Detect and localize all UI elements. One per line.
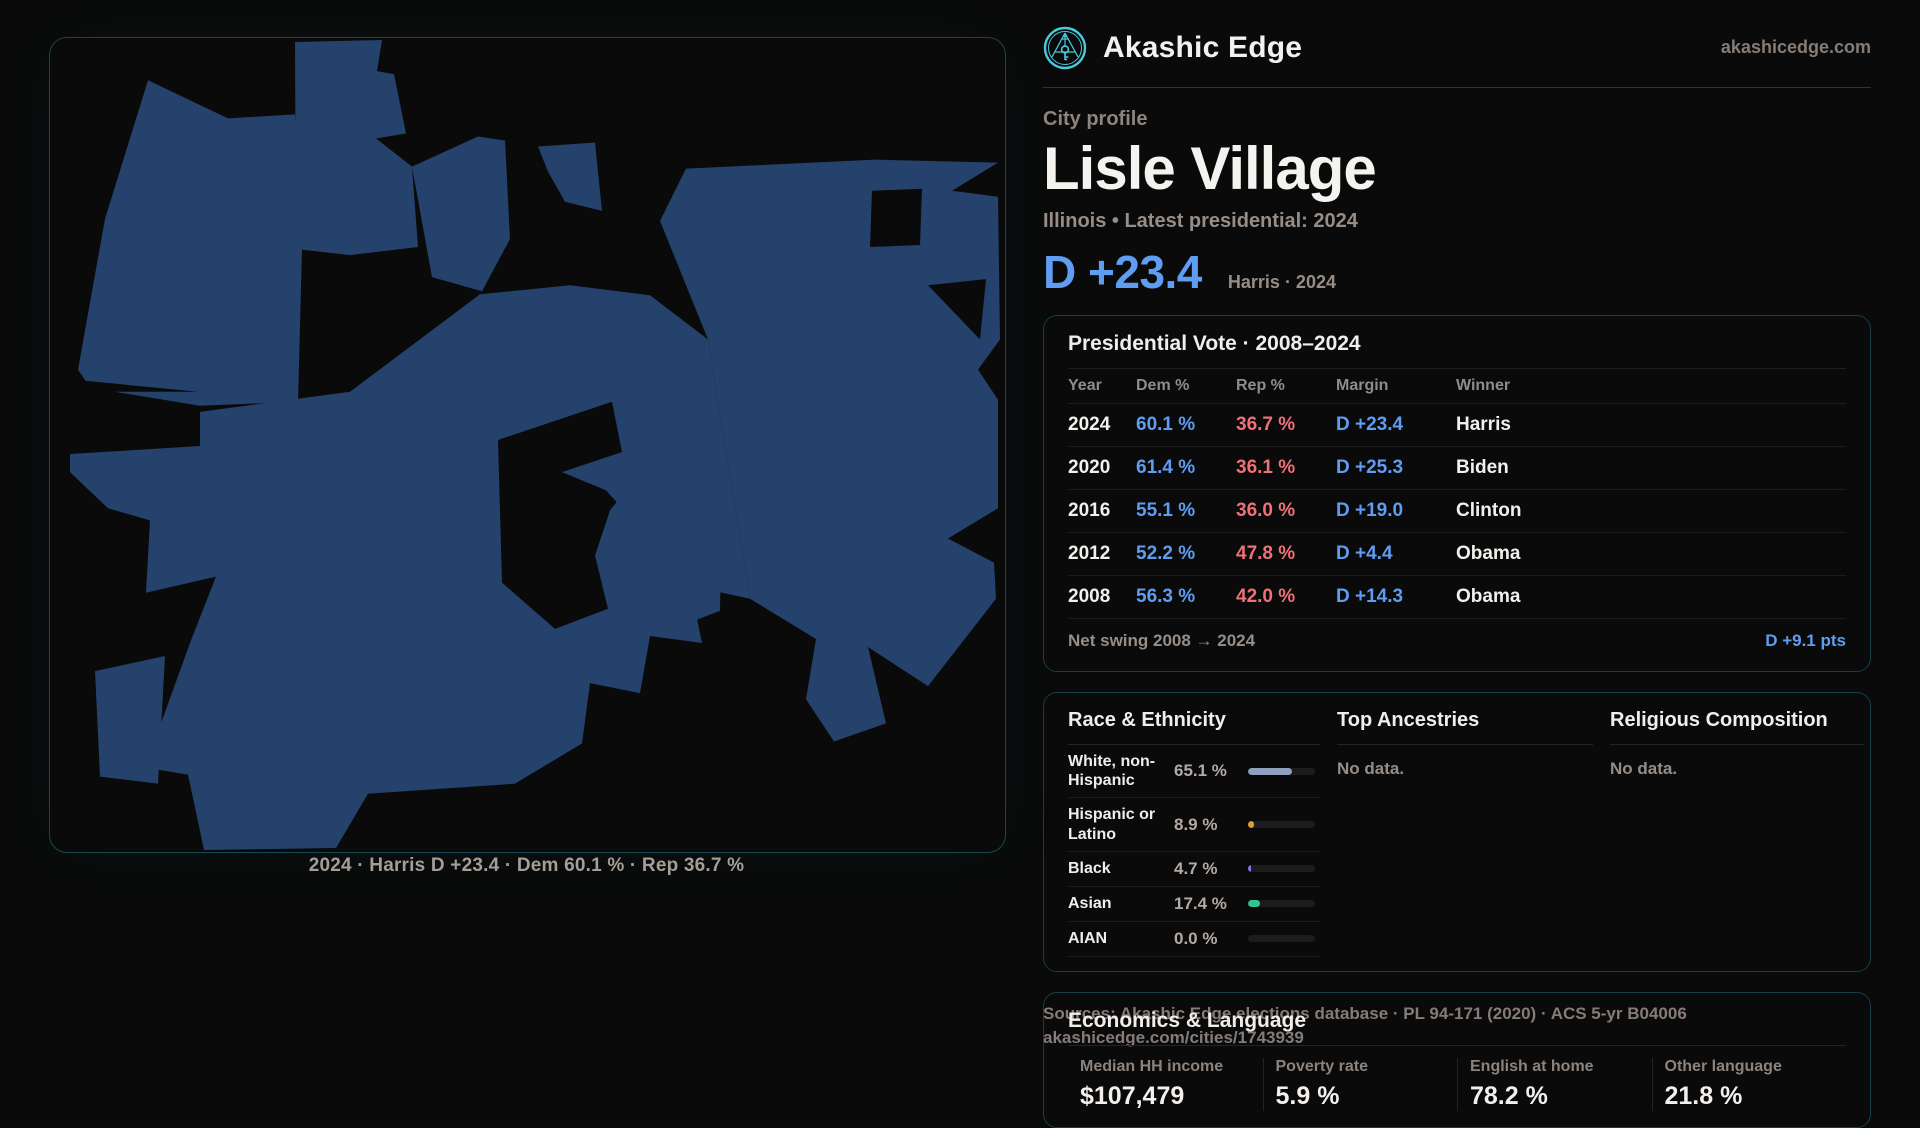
- demographics-card: Race & Ethnicity White, non-Hispanic 65.…: [1043, 692, 1871, 972]
- cell-dem: 55.1 %: [1136, 500, 1236, 522]
- city-boundary-map: [49, 37, 1006, 853]
- stat-value: $107,479: [1080, 1082, 1263, 1111]
- presidential-vote-card: Presidential Vote · 2008–2024 Year Dem %…: [1043, 315, 1871, 672]
- race-value: 17.4 %: [1174, 894, 1248, 914]
- list-item: Hispanic or Latino 8.9 %: [1068, 798, 1320, 851]
- cell-dem: 56.3 %: [1136, 586, 1236, 608]
- cell-winner: Biden: [1456, 457, 1846, 479]
- hero-margin-caption: Harris · 2024: [1228, 272, 1336, 293]
- economics-card: Economics & Language Median HH income $1…: [1043, 992, 1871, 1128]
- list-item: Asian 17.4 %: [1068, 887, 1320, 922]
- cell-rep: 47.8 %: [1236, 543, 1336, 565]
- top-ancestries-title: Top Ancestries: [1337, 709, 1593, 745]
- stat-label: English at home: [1470, 1058, 1652, 1076]
- cell-winner: Clinton: [1456, 500, 1846, 522]
- stat-label: Other language: [1665, 1058, 1847, 1076]
- stat-other-language: Other language 21.8 %: [1652, 1058, 1847, 1111]
- list-item: AIAN 0.0 %: [1068, 922, 1320, 957]
- col-margin: Margin: [1336, 377, 1456, 395]
- map-polygon-svg: [50, 38, 1005, 852]
- race-bar: [1248, 935, 1315, 942]
- col-winner: Winner: [1456, 377, 1846, 395]
- race-value: 4.7 %: [1174, 859, 1248, 879]
- stat-median-income: Median HH income $107,479: [1068, 1058, 1263, 1111]
- stat-poverty-rate: Poverty rate 5.9 %: [1263, 1058, 1458, 1111]
- list-item: White, non-Hispanic 65.1 %: [1068, 745, 1320, 798]
- page-title: Lisle Village: [1043, 137, 1871, 200]
- table-row: 2012 52.2 % 47.8 % D +4.4 Obama: [1068, 533, 1846, 576]
- race-value: 65.1 %: [1174, 761, 1248, 781]
- religious-composition-column: Religious Composition No data.: [1610, 709, 1864, 957]
- cell-winner: Obama: [1456, 586, 1846, 608]
- race-ethnicity-column: Race & Ethnicity White, non-Hispanic 65.…: [1068, 709, 1320, 957]
- cell-year: 2008: [1068, 586, 1136, 608]
- brand-name: Akashic Edge: [1103, 31, 1302, 65]
- race-label: Asian: [1068, 894, 1174, 913]
- cell-margin: D +19.0: [1336, 500, 1456, 522]
- stat-label: Median HH income: [1080, 1058, 1263, 1076]
- akashic-edge-logo-icon: [1043, 26, 1087, 70]
- cell-rep: 36.0 %: [1236, 500, 1336, 522]
- cell-rep: 42.0 %: [1236, 586, 1336, 608]
- race-bar: [1248, 821, 1315, 828]
- col-rep: Rep %: [1236, 377, 1336, 395]
- cell-year: 2024: [1068, 414, 1136, 436]
- cell-winner: Harris: [1456, 414, 1846, 436]
- list-item: Black 4.7 %: [1068, 852, 1320, 887]
- profile-panel: Akashic Edge akashicedge.com City profil…: [1043, 0, 1871, 1128]
- cell-margin: D +25.3: [1336, 457, 1456, 479]
- cell-year: 2020: [1068, 457, 1136, 479]
- col-dem: Dem %: [1136, 377, 1236, 395]
- cell-winner: Obama: [1456, 543, 1846, 565]
- hero-margin-value: D +23.4: [1043, 245, 1202, 299]
- vote-table-header: Year Dem % Rep % Margin Winner: [1068, 369, 1846, 404]
- race-label: AIAN: [1068, 929, 1174, 948]
- religious-composition-title: Religious Composition: [1610, 709, 1864, 745]
- page-subtitle: Illinois • Latest presidential: 2024: [1043, 210, 1871, 233]
- cell-margin: D +14.3: [1336, 586, 1456, 608]
- ancestries-empty-state: No data.: [1337, 759, 1593, 779]
- presidential-vote-title: Presidential Vote · 2008–2024: [1068, 332, 1846, 369]
- cell-dem: 52.2 %: [1136, 543, 1236, 565]
- stat-value: 21.8 %: [1665, 1082, 1847, 1111]
- top-ancestries-column: Top Ancestries No data.: [1337, 709, 1593, 957]
- net-swing-label: Net swing 2008 → 2024: [1068, 631, 1255, 651]
- net-swing-value: D +9.1 pts: [1765, 631, 1846, 651]
- brand-domain-link[interactable]: akashicedge.com: [1721, 37, 1871, 58]
- cell-dem: 61.4 %: [1136, 457, 1236, 479]
- cell-margin: D +4.4: [1336, 543, 1456, 565]
- race-bar: [1248, 900, 1315, 907]
- race-value: 8.9 %: [1174, 815, 1248, 835]
- race-ethnicity-title: Race & Ethnicity: [1068, 709, 1320, 745]
- stat-english-at-home: English at home 78.2 %: [1457, 1058, 1652, 1111]
- race-value: 0.0 %: [1174, 929, 1248, 949]
- cell-margin: D +23.4: [1336, 414, 1456, 436]
- table-row: 2020 61.4 % 36.1 % D +25.3 Biden: [1068, 447, 1846, 490]
- stat-value: 5.9 %: [1276, 1082, 1458, 1111]
- religion-empty-state: No data.: [1610, 759, 1864, 779]
- eyebrow: City profile: [1043, 108, 1871, 131]
- race-label: Hispanic or Latino: [1068, 805, 1174, 843]
- table-row: 2008 56.3 % 42.0 % D +14.3 Obama: [1068, 576, 1846, 619]
- table-row: 2016 55.1 % 36.0 % D +19.0 Clinton: [1068, 490, 1846, 533]
- map-caption: 2024 · Harris D +23.4 · Dem 60.1 % · Rep…: [49, 855, 1004, 877]
- stat-label: Poverty rate: [1276, 1058, 1458, 1076]
- cell-rep: 36.1 %: [1236, 457, 1336, 479]
- cell-rep: 36.7 %: [1236, 414, 1336, 436]
- hero-margin-block: D +23.4 Harris · 2024: [1043, 245, 1871, 299]
- race-label: White, non-Hispanic: [1068, 752, 1174, 790]
- cell-dem: 60.1 %: [1136, 414, 1236, 436]
- race-bar: [1248, 865, 1315, 872]
- cell-year: 2012: [1068, 543, 1136, 565]
- economics-stats-row: Median HH income $107,479 Poverty rate 5…: [1068, 1058, 1846, 1111]
- race-label: Black: [1068, 859, 1174, 878]
- economics-title: Economics & Language: [1068, 1009, 1846, 1046]
- col-year: Year: [1068, 377, 1136, 395]
- net-swing-row: Net swing 2008 → 2024 D +9.1 pts: [1068, 619, 1846, 659]
- race-bar: [1248, 768, 1315, 775]
- cell-year: 2016: [1068, 500, 1136, 522]
- stat-value: 78.2 %: [1470, 1082, 1652, 1111]
- site-header: Akashic Edge akashicedge.com: [1043, 0, 1871, 88]
- table-row: 2024 60.1 % 36.7 % D +23.4 Harris: [1068, 404, 1846, 447]
